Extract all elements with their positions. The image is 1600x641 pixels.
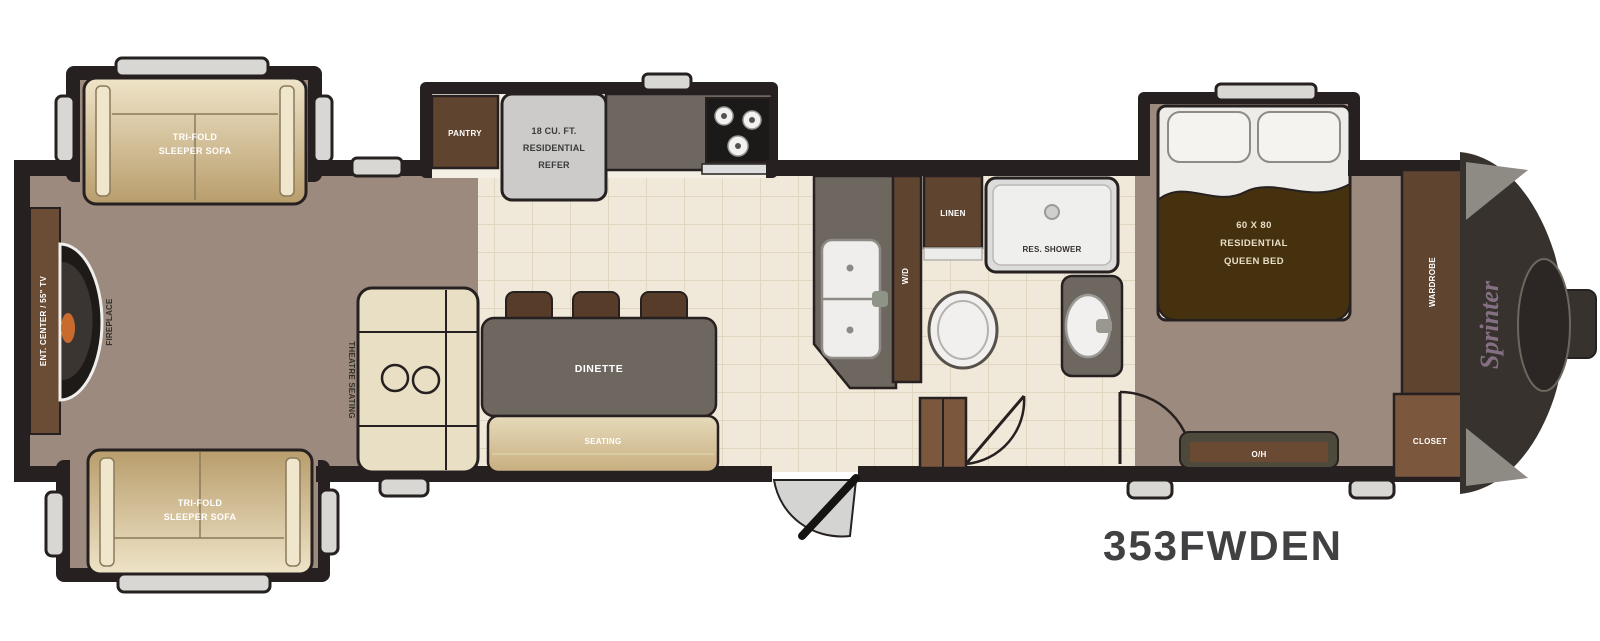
window — [116, 58, 268, 76]
stove-front-trim — [702, 164, 772, 174]
burner-center — [721, 113, 727, 119]
seating-label: SEATING — [584, 437, 621, 446]
sofa-label-line1: TRI-FOLD — [173, 132, 218, 142]
sink-drain — [847, 265, 854, 272]
toilet — [929, 292, 997, 368]
window — [56, 96, 74, 162]
window — [46, 492, 64, 556]
pillow — [1258, 112, 1340, 162]
fireplace-label: FIREPLACE — [105, 298, 114, 346]
window — [1216, 84, 1316, 100]
window — [643, 74, 691, 90]
sofa-armrest — [280, 86, 294, 196]
bed-blanket — [1158, 184, 1350, 320]
window — [314, 96, 332, 162]
bed-label-line1: 60 X 80 — [1236, 220, 1272, 231]
sofa-armrest — [100, 458, 114, 566]
floorplan-drawing: TRI-FOLD SLEEPER SOFA TRI-FOLD SLEEPER S… — [0, 0, 1600, 641]
burner-center — [749, 117, 755, 123]
sink-drain — [847, 327, 854, 334]
pillow — [1168, 112, 1250, 162]
pantry-label: PANTRY — [448, 129, 482, 138]
theatre-seating-label: THEATRE SEATING — [347, 341, 356, 418]
window — [380, 478, 428, 496]
slideout-sofa-bottom: TRI-FOLD SLEEPER SOFA — [46, 450, 338, 592]
sofa-label-line2: SLEEPER SOFA — [164, 512, 237, 522]
refer-label-line1: 18 CU. FT. — [531, 126, 576, 136]
sofa-armrest — [96, 86, 110, 196]
dinette-label: DINETTE — [575, 363, 623, 375]
linen-label: LINEN — [940, 209, 966, 218]
model-number: 353FWDEN — [1103, 522, 1343, 569]
refer-label-line2: RESIDENTIAL — [523, 143, 586, 153]
overhead-label: O/H — [1251, 450, 1266, 459]
shower-drain — [1045, 205, 1059, 219]
linen-door — [924, 248, 982, 260]
top-wall-segment — [766, 160, 1150, 176]
sofa-label-line2: SLEEPER SOFA — [159, 146, 232, 156]
slideout-bedroom: 60 X 80 RESIDENTIAL QUEEN BED — [1138, 84, 1360, 320]
burner-center — [735, 143, 741, 149]
theatre-seating — [358, 288, 478, 472]
faucet-icon — [872, 291, 888, 307]
bed-label-line3: QUEEN BED — [1224, 256, 1284, 267]
vanity-faucet-icon — [1096, 319, 1112, 333]
fireplace-flame-icon — [61, 313, 75, 343]
window — [1128, 480, 1172, 498]
shower-label: RES. SHOWER — [1022, 245, 1081, 254]
window — [118, 574, 270, 592]
front-cap: Sprinter — [1460, 152, 1596, 494]
rear-wall — [14, 160, 30, 482]
cap-dome — [1518, 259, 1570, 391]
wardrobe-label: WARDROBE — [1428, 257, 1437, 307]
closet — [1394, 394, 1466, 478]
bed-label-line2: RESIDENTIAL — [1220, 238, 1288, 249]
rv-floorplan-page: TRI-FOLD SLEEPER SOFA TRI-FOLD SLEEPER S… — [0, 0, 1600, 641]
window — [352, 158, 402, 176]
closet-label: CLOSET — [1413, 437, 1447, 446]
wd-label: W/D — [901, 268, 910, 284]
ent-center-label: ENT. CENTER / 55" TV — [39, 276, 48, 367]
sofa-label-line1: TRI-FOLD — [178, 498, 223, 508]
window — [320, 490, 338, 554]
sofa-armrest — [286, 458, 300, 566]
slideout-sofa-top: TRI-FOLD SLEEPER SOFA — [56, 58, 332, 204]
window — [1350, 480, 1394, 498]
refer-label-line3: REFER — [538, 160, 570, 170]
brand-logo: Sprinter — [1475, 280, 1504, 369]
